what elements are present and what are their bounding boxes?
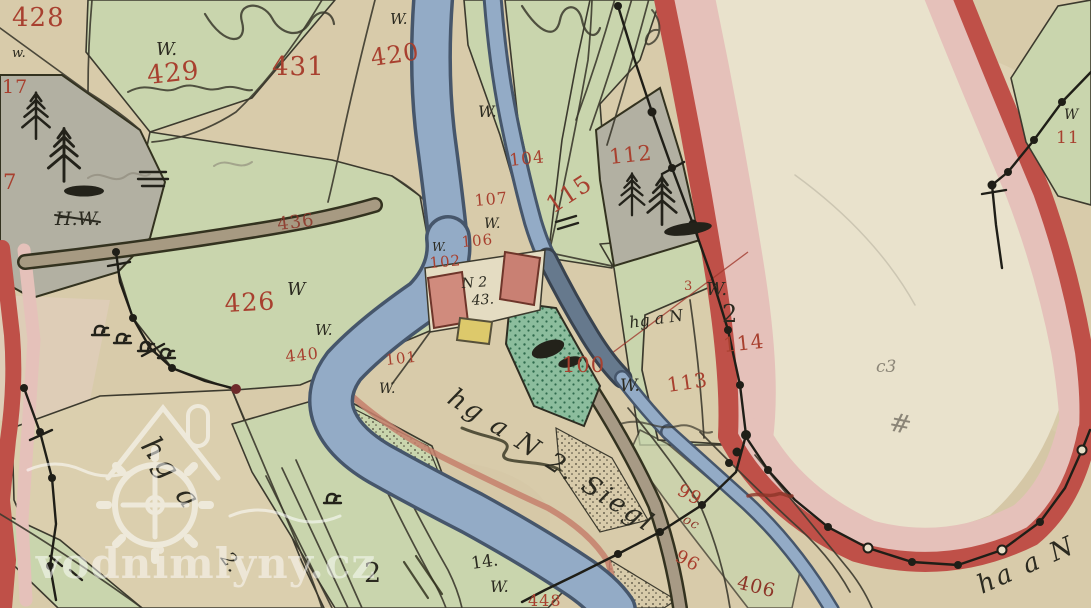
- parcel-number-431: 431: [272, 52, 325, 82]
- parcel-number-101: 101: [385, 348, 418, 369]
- parcel-number-107: 107: [474, 188, 509, 210]
- w-mark: W.: [379, 381, 395, 397]
- w-mark: W.: [490, 577, 509, 596]
- house-number-n2: N 2: [460, 274, 488, 292]
- parcel-number-7: 7: [3, 170, 17, 194]
- parcel-number-426: 426: [224, 286, 276, 318]
- w-mark: W.: [315, 321, 333, 339]
- parcel-number-102: 102: [429, 251, 462, 272]
- w-mark: W.: [156, 39, 177, 60]
- number-14-mark: 14.: [470, 550, 500, 574]
- hw-mark: H.W.: [54, 208, 100, 230]
- w-mark: W.: [620, 376, 640, 396]
- w-mark: W: [1064, 107, 1080, 123]
- parcel-number-114: 114: [722, 329, 765, 357]
- w-mark: W.: [478, 102, 497, 121]
- parcel-number-106: 106: [461, 230, 494, 251]
- map-scan: 428 429 431 420 104 112 107 115 106 102 …: [0, 0, 1091, 608]
- parcel-number-448: 448: [528, 591, 562, 608]
- w-mark: W: [287, 279, 307, 300]
- house-number-43: 43.: [470, 291, 494, 309]
- parcel-number-100: 100: [562, 353, 605, 377]
- parcel-number-17: 17: [2, 76, 28, 98]
- number-2-mark: 2: [722, 300, 737, 328]
- pencil-note-c3: c3: [876, 357, 896, 377]
- parcel-number-11: 11: [1056, 128, 1080, 148]
- parcel-number-440: 440: [284, 344, 319, 366]
- watermark-site-text: vodnimlyny.cz: [35, 539, 376, 588]
- w-mark: W.: [390, 10, 408, 28]
- w-mark: w.: [12, 46, 26, 61]
- parcel-number-429: 429: [146, 56, 201, 91]
- parcel-number-3: 3: [684, 279, 693, 294]
- building-yellow: [457, 318, 492, 344]
- cadastral-map: 428 429 431 420 104 112 107 115 106 102 …: [0, 0, 1091, 608]
- w-mark: W.: [706, 279, 727, 300]
- parcel-number-104: 104: [508, 147, 545, 171]
- parcel-number-428: 428: [12, 3, 65, 33]
- w-mark: W.: [484, 216, 500, 232]
- w-mark: W.: [432, 240, 446, 254]
- building-pink-2: [500, 252, 540, 305]
- parcel-number-112: 112: [608, 141, 653, 169]
